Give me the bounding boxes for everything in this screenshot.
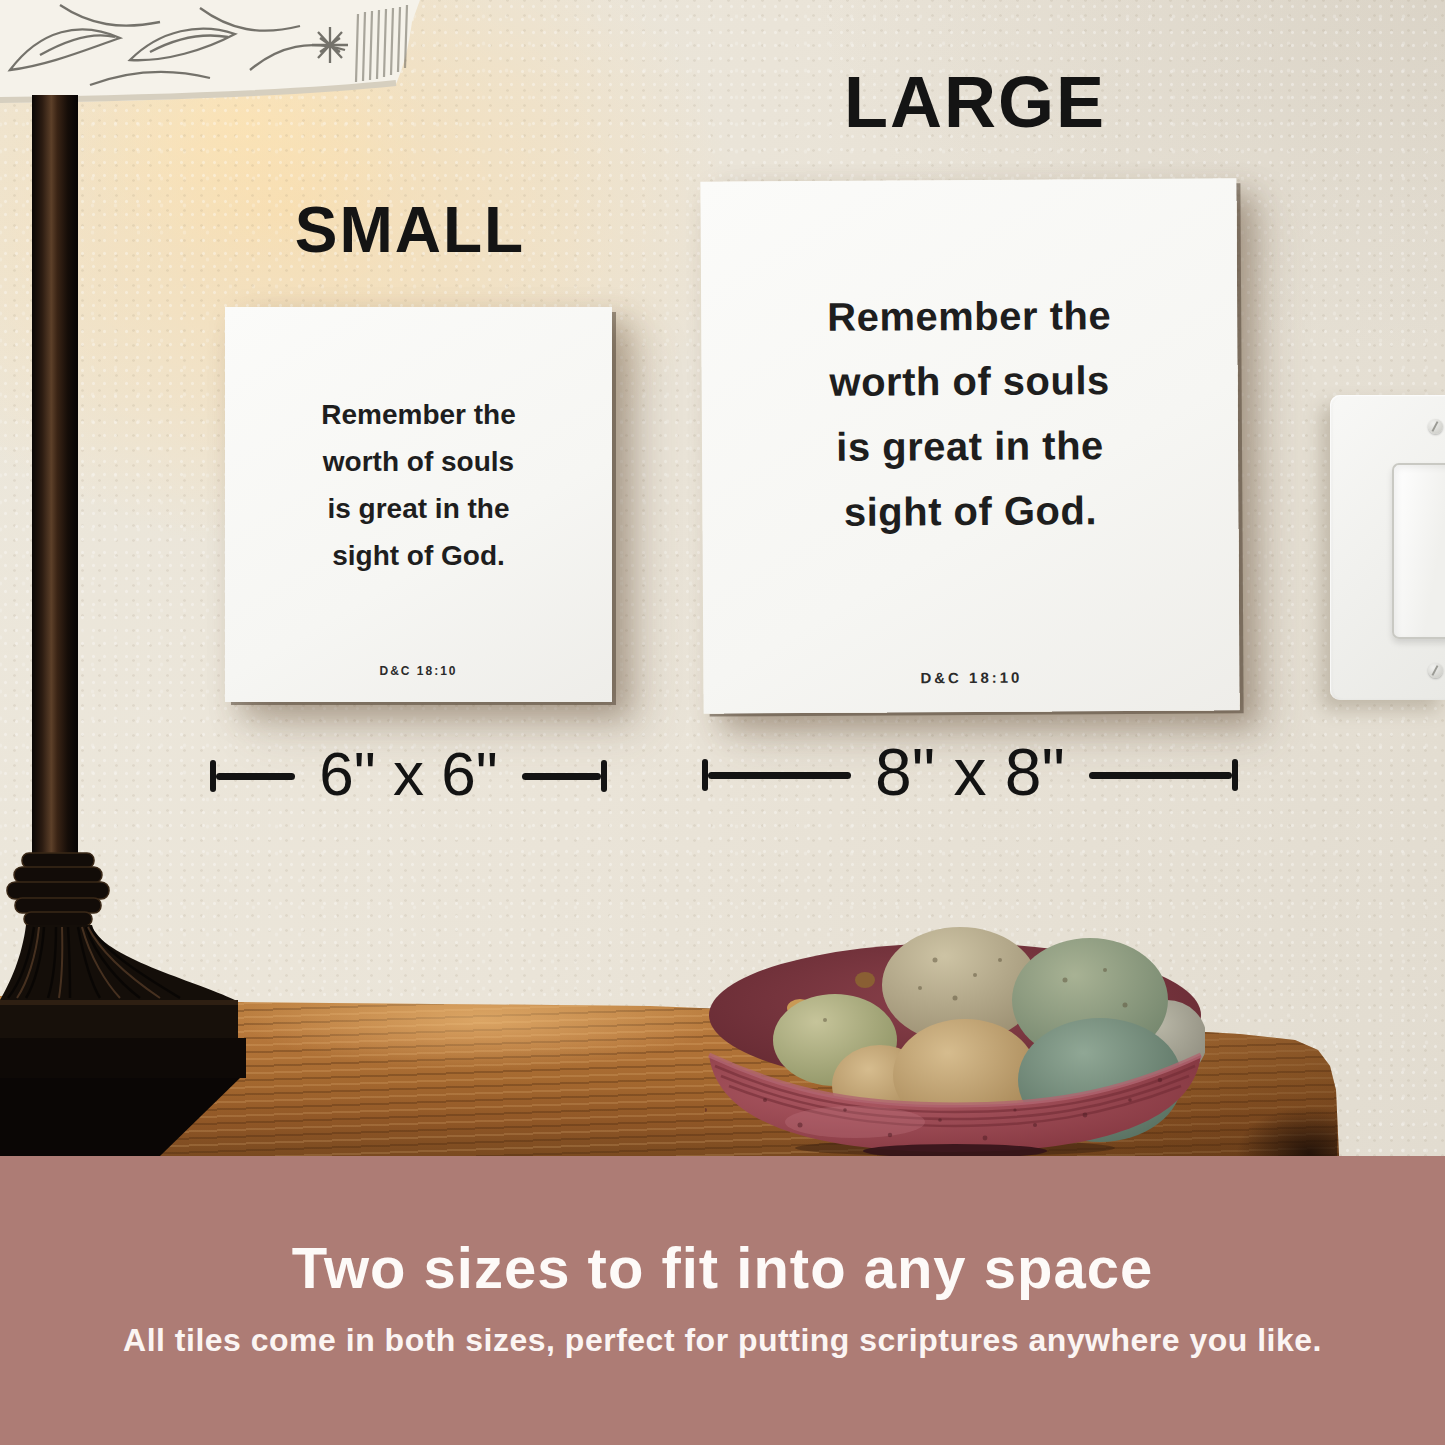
switch-rocker	[1392, 463, 1445, 639]
banner-headline: Two sizes to fit into any space	[0, 1156, 1445, 1304]
lamp	[0, 95, 260, 1156]
scripture-citation: D&C 18:10	[703, 667, 1239, 687]
quote-line: worth of souls	[225, 438, 612, 485]
product-size-comparison-image: Remember the worth of souls is great in …	[0, 0, 1445, 1445]
bowl-sheen	[785, 1106, 925, 1138]
quote-line: sight of God.	[225, 532, 612, 579]
switch-screw	[1428, 663, 1443, 678]
quote-line: is great in the	[225, 485, 612, 532]
under-table-shadow	[1225, 1092, 1337, 1156]
dimension-label-small: 6" x 6"	[295, 738, 521, 809]
quote-line: is great in the	[702, 412, 1238, 480]
banner-subtext: All tiles come in both sizes, perfect fo…	[0, 1320, 1445, 1360]
room-photo: Remember the worth of souls is great in …	[0, 0, 1445, 1156]
tile-quote: Remember the worth of souls is great in …	[700, 178, 1238, 545]
dimension-line	[216, 773, 295, 780]
dimension-line	[522, 773, 601, 780]
lamp-plinth-mid	[0, 1038, 246, 1078]
light-switch	[1330, 395, 1445, 700]
quote-line: sight of God.	[702, 477, 1238, 545]
scripture-tile-large: Remember the worth of souls is great in …	[700, 178, 1239, 713]
scripture-citation: D&C 18:10	[225, 664, 612, 678]
dimension-line	[708, 772, 851, 779]
dimension-line	[1089, 772, 1232, 779]
tile-quote: Remember the worth of souls is great in …	[225, 307, 612, 579]
scripture-tile-small: Remember the worth of souls is great in …	[225, 307, 612, 702]
quote-line: Remember the	[225, 391, 612, 438]
lamp-neck-rings	[7, 853, 109, 926]
caption-banner: Two sizes to fit into any space All tile…	[0, 1156, 1445, 1445]
dimension-annotation-large: 8" x 8"	[702, 742, 1238, 808]
lamp-plinth-top	[0, 1000, 238, 1038]
dimension-tick	[1232, 759, 1238, 791]
dimension-label-large: 8" x 8"	[851, 734, 1089, 810]
lamp-base-flare	[0, 925, 235, 1000]
quote-line: Remember the	[701, 282, 1237, 350]
dimension-tick	[601, 760, 607, 792]
bowl-of-rocks	[705, 920, 1205, 1156]
lampshade	[0, 0, 450, 105]
switch-screw	[1428, 419, 1443, 434]
lamp-pole	[32, 95, 78, 855]
size-label-small: SMALL	[250, 198, 570, 262]
lamp-plinth-foot	[0, 1078, 240, 1156]
dimension-annotation-small: 6" x 6"	[210, 744, 607, 808]
size-label-large: LARGE	[795, 66, 1155, 138]
quote-line: worth of souls	[701, 347, 1237, 415]
